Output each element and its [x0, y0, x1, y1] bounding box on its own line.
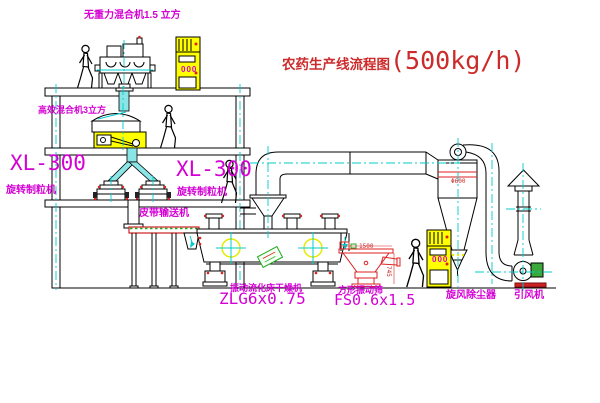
fan-motor [531, 263, 543, 277]
exhaust-duct [240, 152, 438, 229]
person-top-floor [78, 45, 93, 88]
label-xl300-right: XL-300 [176, 159, 252, 180]
label-dryer-model: ZLG6x0.75 [219, 291, 306, 307]
label-xl300-left: XL-300 [10, 153, 86, 174]
label-granulator-left: 旋转制粒机 [6, 186, 56, 196]
fan-base [515, 283, 546, 287]
gravity-free-mixer [95, 36, 155, 111]
stack-cap [508, 170, 539, 186]
label-screen-model: FS0.6x1.5 [334, 293, 415, 308]
dim-cyclone-diameter: Φ600 [451, 179, 465, 185]
label-conveyor: 皮带输送机 [139, 209, 189, 219]
exhaust-stack [508, 170, 539, 255]
induced-draft-fan [514, 262, 547, 288]
dim-screen-length: 1500 [359, 244, 373, 250]
control-cabinet-1 [176, 37, 200, 90]
mixer-discharge-chute [119, 91, 129, 111]
title-capacity: (500kg/h) [390, 46, 525, 75]
person-2nd-floor [161, 105, 176, 148]
label-granulator-right: 旋转制粒机 [177, 188, 227, 198]
cabinet2-display: 000 [432, 256, 448, 264]
person-ground [407, 239, 424, 287]
drawing-title: 农药生产线流程图 (500kg/h) [282, 46, 525, 75]
process-flow-drawing: 农药生产线流程图 (500kg/h) 无重力混合机1.5 立方 高效混合机3立方… [0, 0, 600, 403]
title-text: 农药生产线流程图 [282, 57, 390, 72]
cabinet1-display: 000 [181, 66, 197, 74]
label-cyclone: 旋风除尘器 [446, 291, 496, 301]
label-mixer-top: 无重力混合机1.5 立方 [84, 11, 181, 21]
dim-screen-height: 745 [385, 266, 391, 277]
label-mixer-2f: 高效混合机3立方 [38, 106, 106, 115]
high-efficiency-mixer [92, 112, 146, 148]
fluid-bed-dryer [184, 214, 356, 286]
label-fan: 引风机 [514, 291, 544, 301]
